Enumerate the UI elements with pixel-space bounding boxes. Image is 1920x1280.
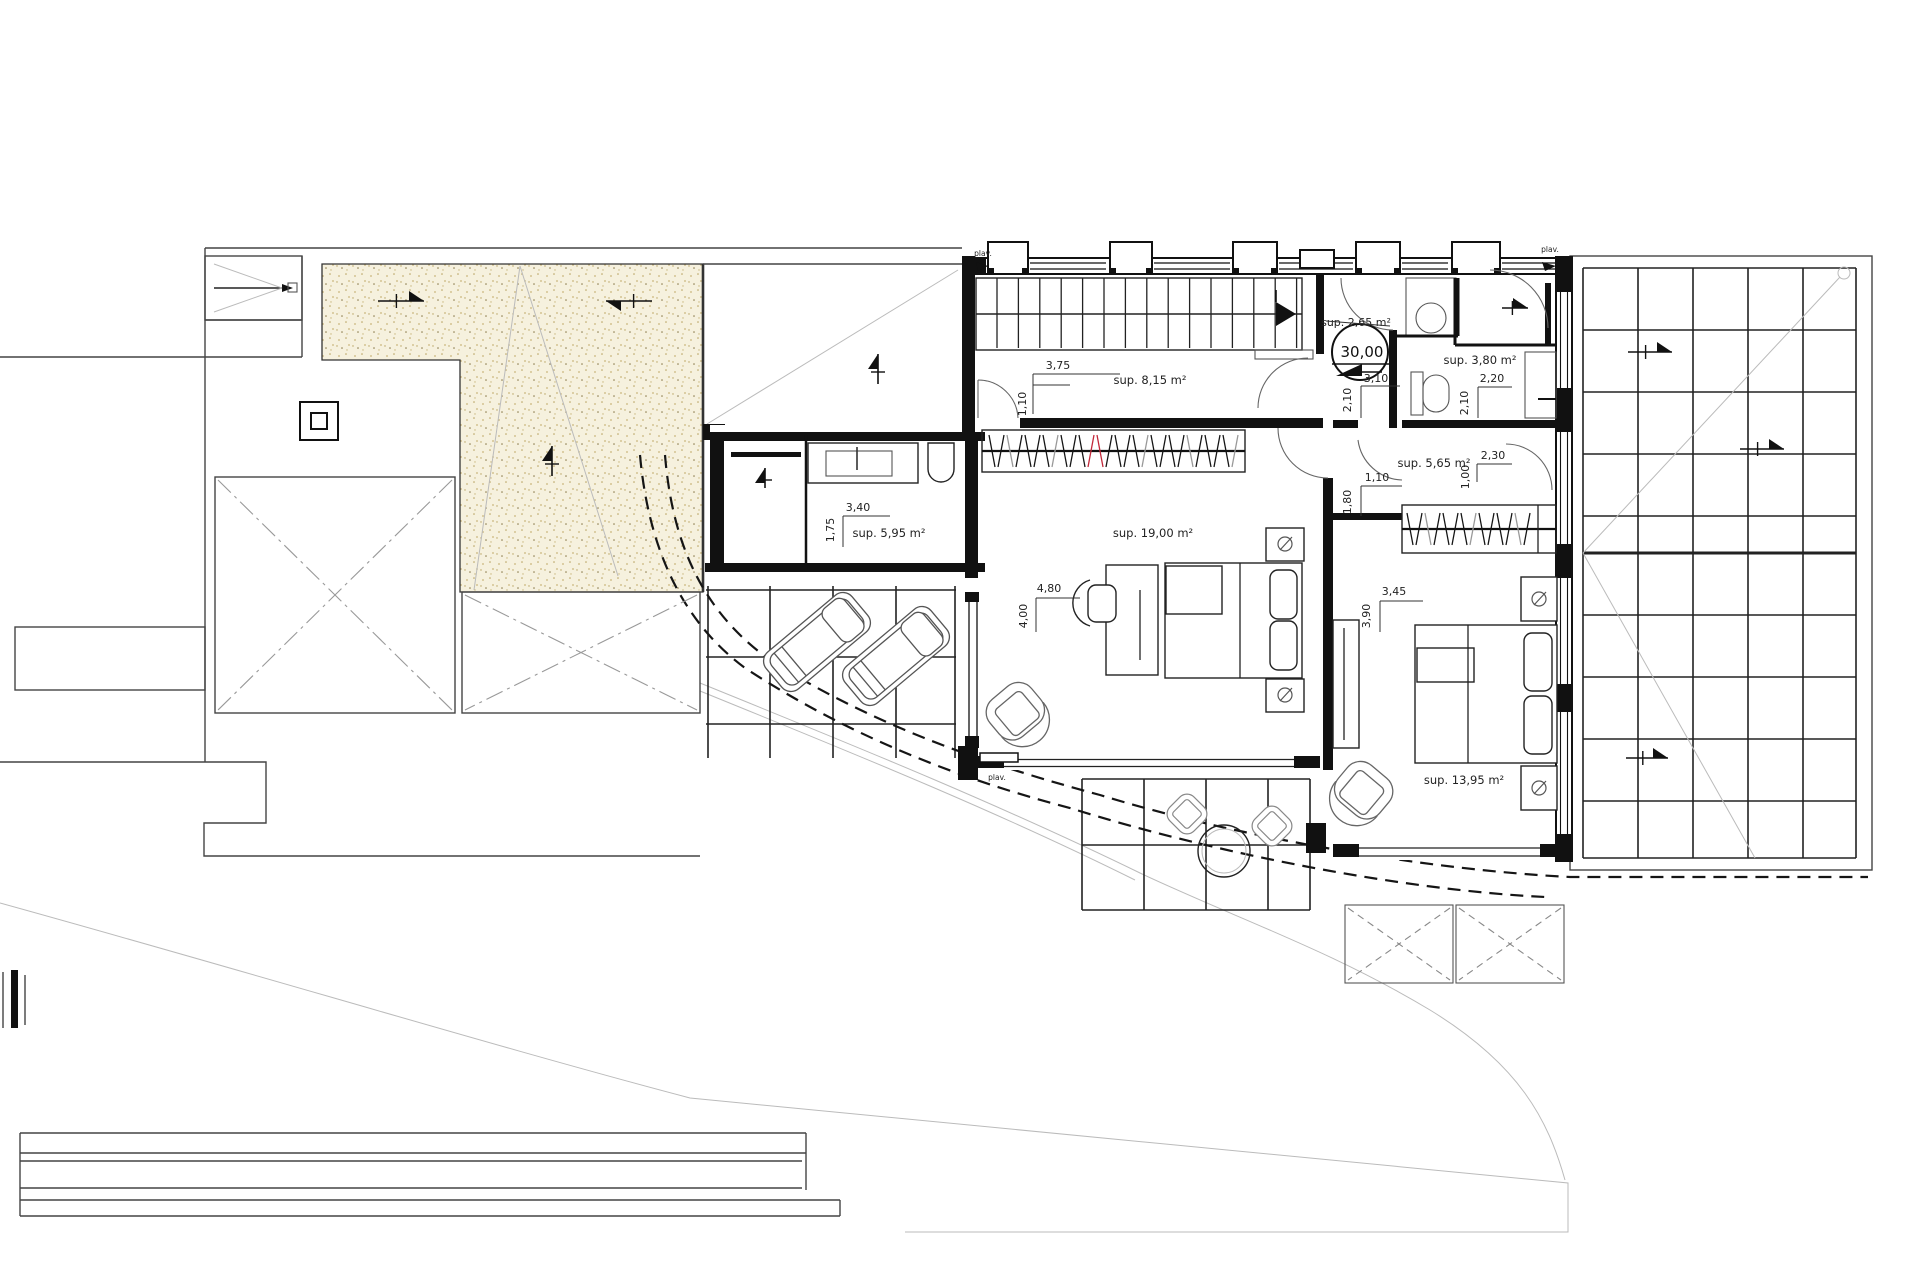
right-tiled-terrace [1570, 256, 1872, 870]
svg-text:1,10: 1,10 [1365, 471, 1390, 484]
north-wall-windows [962, 242, 1568, 274]
east-wall-windows [1556, 256, 1572, 862]
svg-text:2,10: 2,10 [1341, 388, 1354, 413]
svg-text:2,20: 2,20 [1480, 372, 1505, 385]
site-steps-bands [20, 1133, 840, 1216]
level-value: 30,00 [1341, 343, 1384, 361]
svg-text:3,75: 3,75 [1046, 359, 1071, 372]
chimney [300, 402, 338, 440]
wall [962, 256, 975, 432]
terrace-glazing [965, 592, 979, 748]
svg-text:plav.: plav. [974, 249, 992, 258]
svg-text:3,45: 3,45 [1382, 585, 1407, 598]
building [705, 242, 1572, 862]
slope-arrow [1626, 748, 1668, 765]
svg-text:plav.: plav. [988, 773, 1006, 782]
bedroom-terrace-crossed [1345, 905, 1564, 983]
floor-plan-canvas: 30,00 sup. 2,65 m² sup. 8,15 m² sup. 3,8… [0, 0, 1920, 1280]
terrain-contour-low [0, 903, 1568, 1232]
label-bathroom: sup. 3,80 m² [1444, 353, 1517, 367]
svg-text:1,00: 1,00 [1459, 465, 1472, 490]
slope-arrow [1628, 342, 1672, 359]
terrace-table-set [1163, 790, 1296, 877]
svg-text:1,80: 1,80 [1341, 490, 1354, 515]
svg-text:1,75: 1,75 [824, 518, 837, 543]
crossed-area-label: sup. 2,65 m² [1321, 316, 1391, 329]
site-entry-gate [3, 970, 25, 1028]
label-bedroom: sup. 13,95 m² [1424, 773, 1504, 787]
slope-arrow [868, 354, 885, 384]
site-left-structure [15, 627, 205, 690]
label-master-bedroom: s­up. 19,00 m² [1113, 526, 1193, 540]
bedroom-desk [1333, 620, 1359, 748]
svg-text:sup. 2,65 m²: sup. 2,65 m² [1321, 316, 1391, 329]
bedroom-bed [1415, 625, 1557, 763]
drain-channel [205, 256, 302, 320]
svg-text:3,40: 3,40 [846, 501, 871, 514]
svg-text:4,80: 4,80 [1037, 582, 1062, 595]
svg-text:3,90: 3,90 [1360, 604, 1373, 629]
svg-text:2,30: 2,30 [1481, 449, 1506, 462]
master-bed [1165, 563, 1302, 678]
label-stair-hall: sup. 8,15 m² [1114, 373, 1187, 387]
svg-text:3,10: 3,10 [1364, 372, 1389, 385]
sand-roof-terrace [322, 264, 703, 592]
label-dressing: sup. 5,95 m² [853, 526, 926, 540]
svg-text:1,10: 1,10 [1016, 392, 1029, 417]
floor-plan-page: 30,00 sup. 2,65 m² sup. 8,15 m² sup. 3,8… [0, 0, 1920, 1280]
svg-text:plav.: plav. [1541, 245, 1559, 254]
svg-text:4,00: 4,00 [1017, 604, 1030, 629]
svg-text:2,10: 2,10 [1458, 391, 1471, 416]
roof-area [703, 264, 962, 440]
